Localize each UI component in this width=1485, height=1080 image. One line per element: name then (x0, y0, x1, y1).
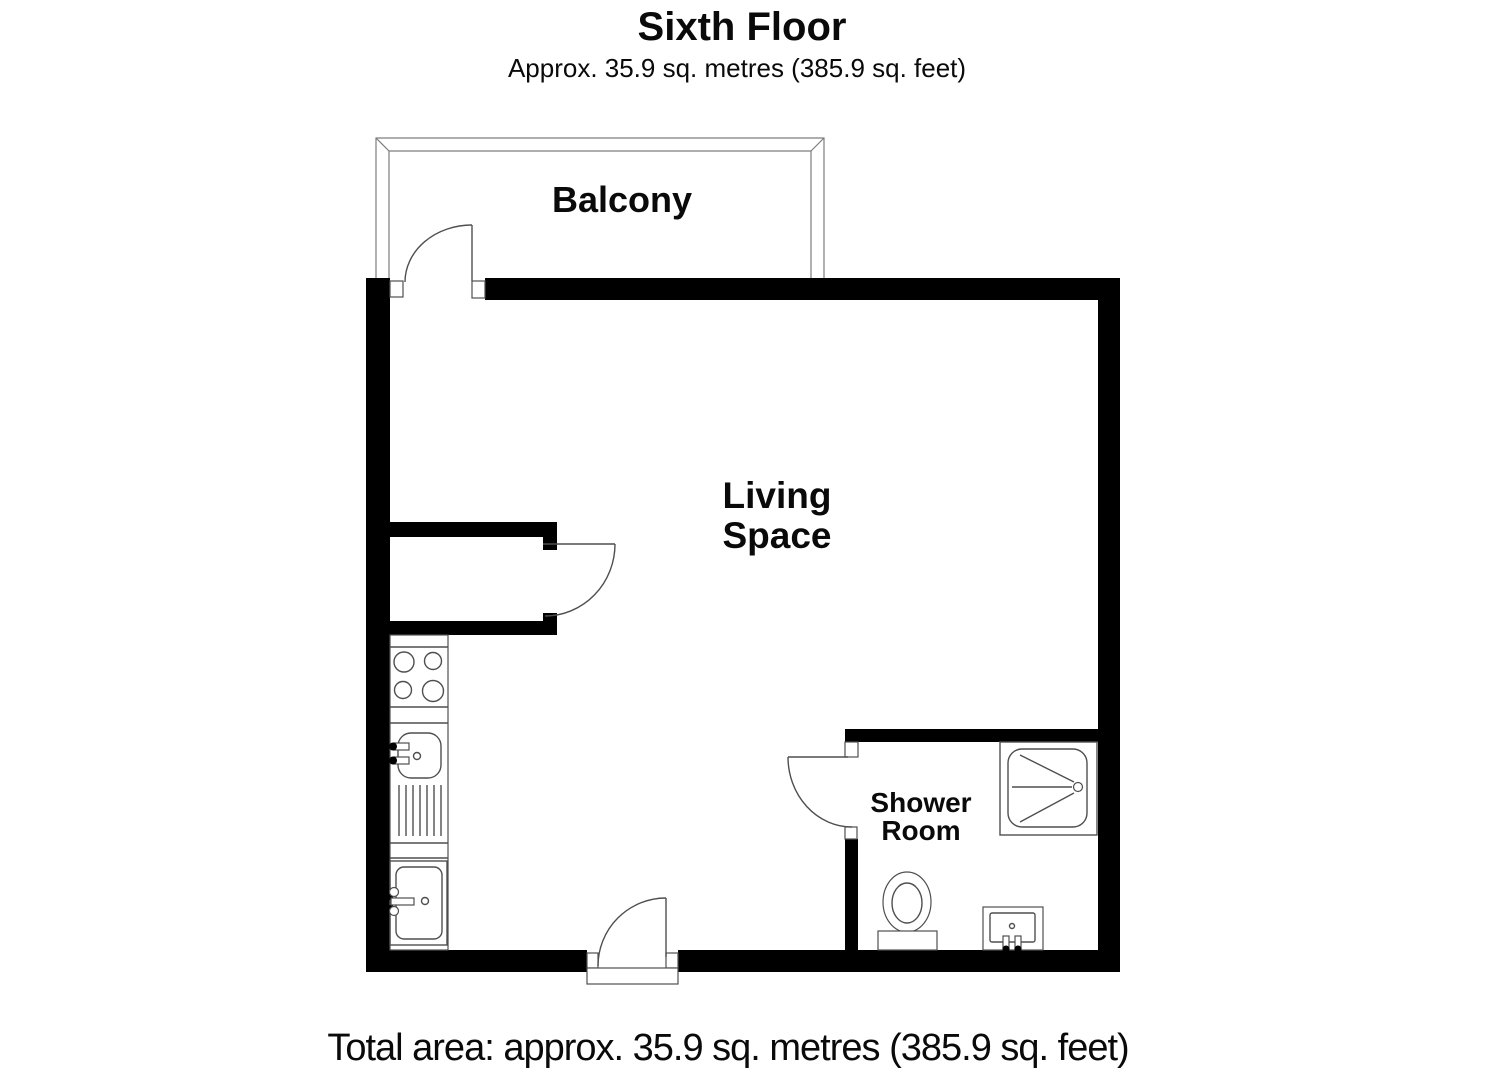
shower-tray-icon (1000, 742, 1097, 835)
shower-room-label-line1: Shower (870, 787, 971, 818)
shower-room-label-line2: Room (881, 815, 960, 846)
shower-room-door (788, 757, 852, 827)
wall-top (485, 278, 1120, 300)
total-area-label: Total area: approx. 35.9 sq. metres (385… (327, 1028, 1128, 1069)
floorplan-page: Sixth Floor Approx. 35.9 sq. metres (385… (0, 0, 1485, 1080)
living-space-label-line2: Space (722, 515, 831, 556)
shower-room-west-wall (845, 839, 858, 950)
wall-bottom-right (678, 950, 1120, 972)
closet-door (543, 544, 615, 616)
shower-room-top-wall (845, 729, 1098, 742)
entrance-threshold (587, 968, 678, 984)
toilet-icon (878, 872, 937, 950)
living-space-label: LivingSpace (722, 476, 831, 556)
wall-left (366, 278, 390, 972)
drainer-icon (399, 785, 441, 836)
interior-walls (390, 522, 1098, 950)
balcony-door (405, 225, 472, 282)
wall-bottom-left (366, 950, 587, 972)
wall-right (1098, 278, 1120, 972)
page-title: Sixth Floor (638, 6, 847, 49)
basin-icon (983, 907, 1043, 953)
page-subtitle: Approx. 35.9 sq. metres (385.9 sq. feet) (508, 54, 966, 82)
living-space-label-line1: Living (723, 475, 832, 516)
shower-room-label: ShowerRoom (870, 789, 971, 845)
balcony-label: Balcony (552, 181, 692, 220)
entrance-door (598, 898, 666, 966)
